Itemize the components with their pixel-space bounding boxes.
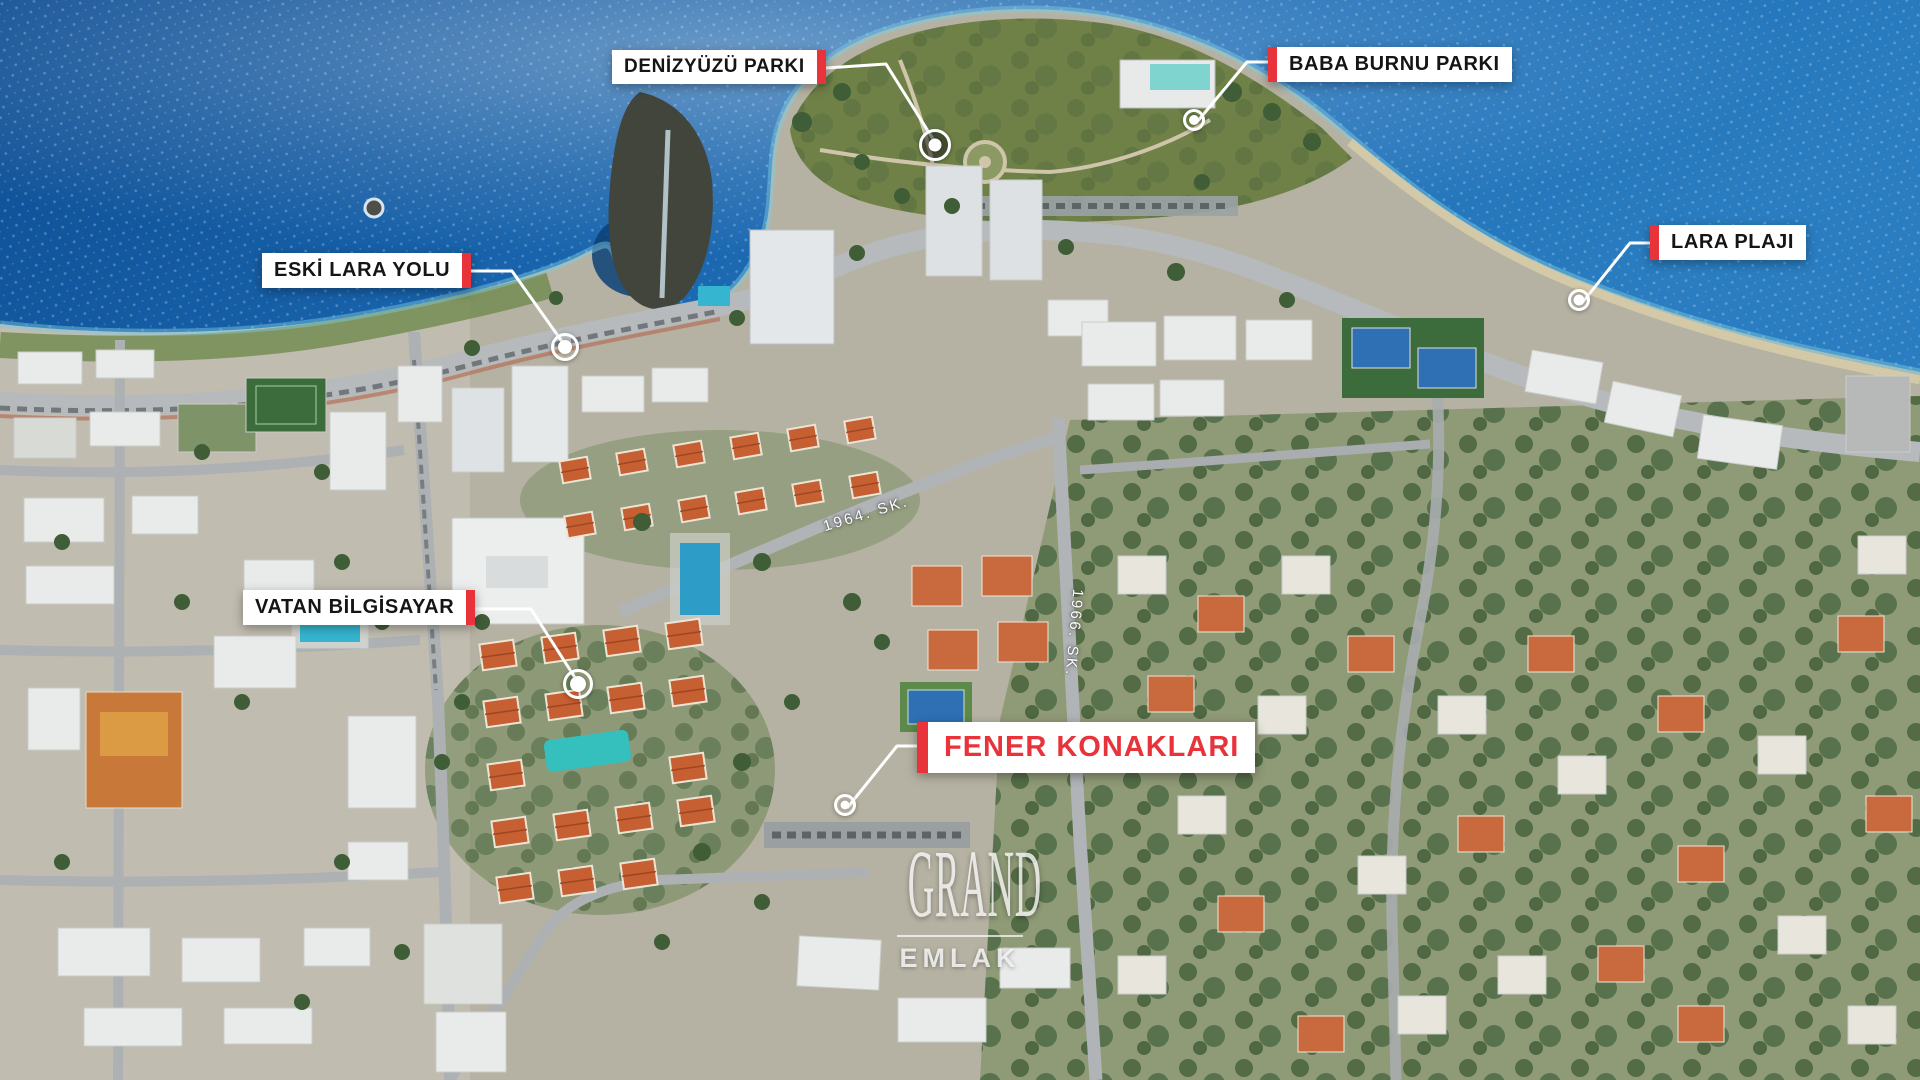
aerial-map: DENİZYÜZÜ PARKI BABA BURNU PARKI ESKİ LA… <box>0 0 1920 1080</box>
callout-lara-plaji: LARA PLAJI <box>1650 225 1806 260</box>
marker-dot <box>558 340 572 354</box>
marker-fener-konaklari <box>834 794 856 816</box>
aerial-photo-background <box>0 0 1920 1080</box>
callout-vatan-bilgisayar: VATAN BİLGİSAYAR <box>243 590 475 625</box>
callout-baba-burnu-parki: BABA BURNU PARKI <box>1268 47 1512 82</box>
callout-text: ESKİ LARA YOLU <box>262 253 462 288</box>
marker-baba-burnu-parki <box>1183 109 1205 131</box>
callout-text: BABA BURNU PARKI <box>1277 47 1512 82</box>
marker-eski-lara-yolu <box>551 333 579 361</box>
accent-bar <box>466 590 475 625</box>
callout-text: DENİZYÜZÜ PARKI <box>612 50 817 84</box>
callout-text: VATAN BİLGİSAYAR <box>243 590 466 625</box>
accent-bar <box>462 253 471 288</box>
marker-dot <box>570 676 586 692</box>
callout-eski-lara-yolu: ESKİ LARA YOLU <box>262 253 471 288</box>
marker-vatan-bilgisayar <box>563 669 593 699</box>
marker-dot <box>1189 115 1199 125</box>
callout-fener-konaklari: FENER KONAKLARI <box>917 722 1255 773</box>
marker-lara-plaji <box>1568 289 1590 311</box>
callout-text: FENER KONAKLARI <box>928 722 1255 773</box>
sea-rock <box>365 199 383 217</box>
accent-bar <box>1268 47 1277 82</box>
callout-text: LARA PLAJI <box>1659 225 1806 260</box>
accent-bar <box>817 50 826 84</box>
accent-bar <box>917 722 928 773</box>
marker-dot <box>841 801 850 810</box>
marker-denizyuzu-parki <box>919 129 951 161</box>
marker-dot <box>1574 295 1585 306</box>
marker-dot <box>929 139 942 152</box>
accent-bar <box>1650 225 1659 260</box>
callout-denizyuzu-parki: DENİZYÜZÜ PARKI <box>612 50 826 84</box>
